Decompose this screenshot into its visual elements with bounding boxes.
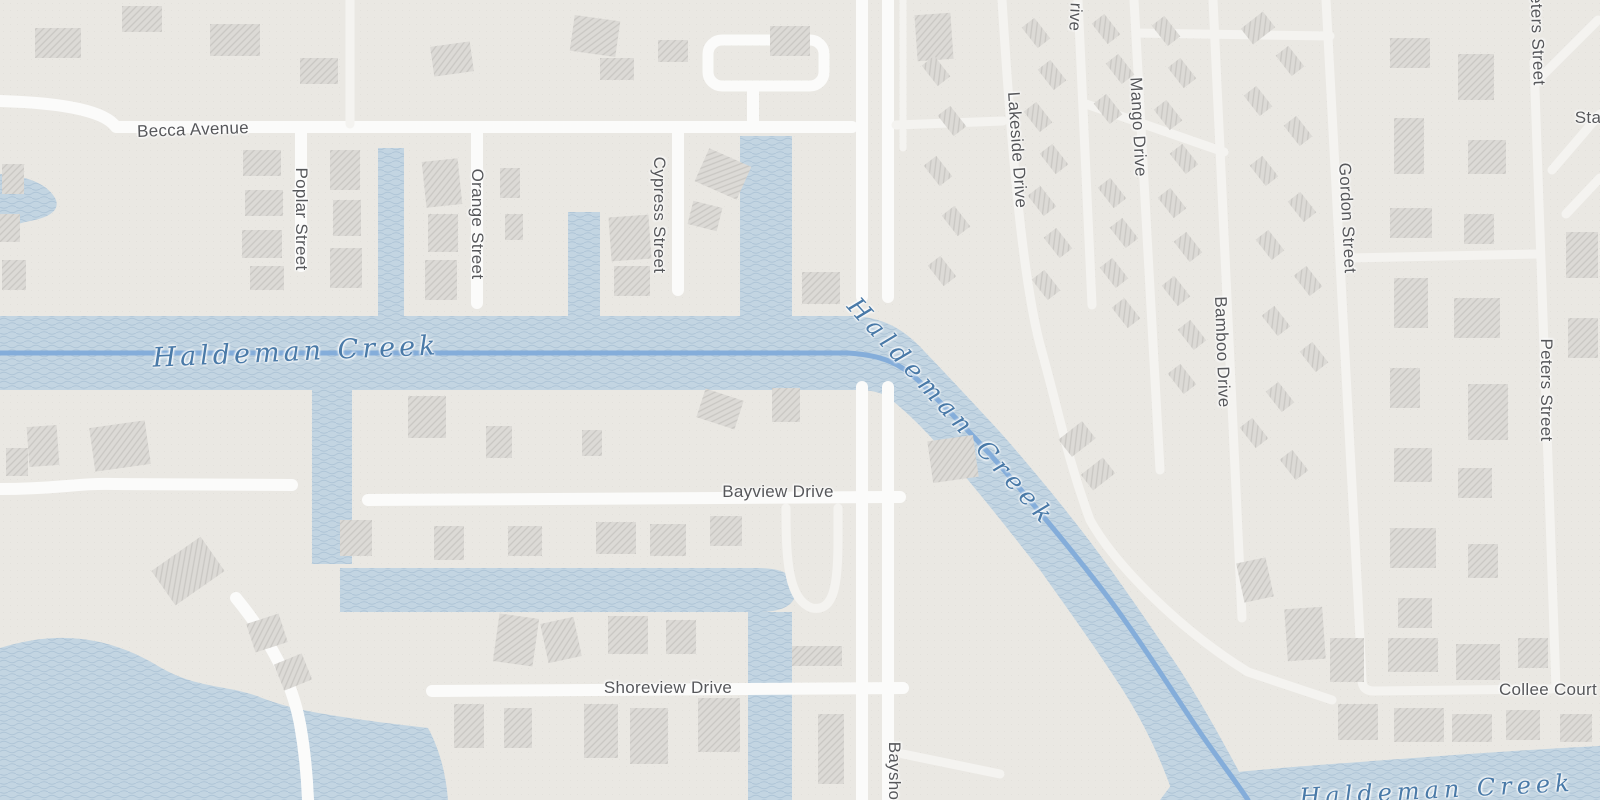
road-shoreview-drive bbox=[432, 688, 903, 691]
canal bbox=[568, 212, 600, 320]
road-peters-street bbox=[1534, 62, 1556, 688]
water-layer bbox=[0, 136, 1600, 800]
road-southwest bbox=[0, 484, 292, 489]
road-ne-diagonal-3 bbox=[1566, 178, 1600, 214]
road-bamboo-drive bbox=[1213, 0, 1242, 618]
road-shoreview-east bbox=[903, 754, 1000, 774]
map-graphics bbox=[0, 0, 1600, 800]
road-gordon-street bbox=[1326, 0, 1358, 598]
road-bayview-loop bbox=[786, 508, 838, 608]
road-mango-drive bbox=[1134, 0, 1160, 470]
bay-southwest bbox=[0, 638, 448, 800]
road-ne-diagonal-1 bbox=[1538, 20, 1598, 80]
road-ne-diagonal-2 bbox=[1552, 114, 1600, 170]
canal-bayview bbox=[340, 568, 796, 612]
road-bayview-drive bbox=[368, 497, 900, 500]
map-canvas[interactable]: Becca AvenuePoplar StreetOrange StreetCy… bbox=[0, 0, 1600, 800]
road-becca-avenue bbox=[0, 101, 852, 127]
canal bbox=[378, 148, 404, 320]
road-drive-partial bbox=[1078, 0, 1092, 305]
canal bbox=[748, 612, 792, 800]
road-gordon-peters-cross bbox=[1348, 254, 1538, 258]
canal bbox=[740, 136, 792, 322]
